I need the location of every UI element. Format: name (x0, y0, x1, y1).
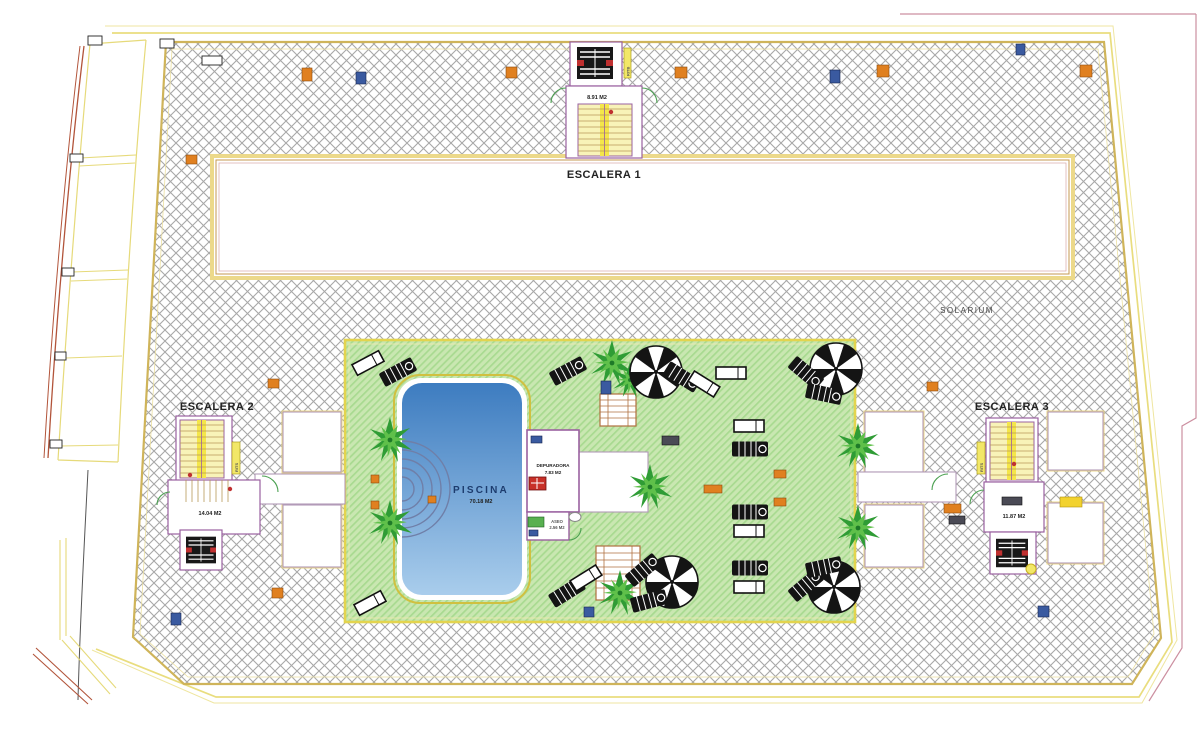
sun-lounger-icon (734, 525, 764, 537)
survey-marker (50, 440, 62, 448)
survey-marker (70, 154, 83, 162)
left-balcony-outlines (33, 36, 146, 704)
escalera2-area-label: 14.04 M2 (199, 511, 222, 517)
marker-badge (171, 613, 181, 625)
sun-lounger-icon (734, 581, 764, 593)
marker-badge (1080, 65, 1092, 77)
marker-badge (1002, 497, 1022, 505)
aseo-area-label: 2.56 M2 (549, 525, 565, 530)
site-edge-curve (78, 470, 88, 700)
lawn-steps-top (600, 394, 636, 426)
sun-lounger-icon (732, 505, 768, 520)
escalera1-area-label: 8.91 M2 (587, 95, 607, 101)
elevator-icon (186, 537, 216, 564)
sun-lounger-icon (716, 367, 746, 379)
marker-badge (584, 607, 594, 617)
marker-badge (774, 470, 786, 478)
stair-flight (578, 104, 632, 156)
marker-badge (268, 379, 279, 388)
solarium-label: SOLARIUM (940, 306, 994, 315)
depuradora-area-label: 7.83 M2 (545, 470, 562, 475)
roof-drain-icon (1026, 564, 1036, 574)
depuradora-label: DEPURADORA (537, 463, 571, 468)
floorplan-canvas: PISCINA 70.18 M2 DEPURADORA 7.83 M2 ASEO… (0, 0, 1200, 735)
pool-label: PISCINA (453, 485, 509, 496)
marker-badge (675, 67, 687, 78)
survey-marker (55, 352, 66, 360)
toilet-icon (569, 513, 581, 522)
stair-flight (180, 420, 224, 478)
marker-badge (704, 485, 722, 493)
pump-valve-icon (529, 477, 546, 490)
marker-badge (302, 68, 312, 81)
pool: PISCINA 70.18 M2 (394, 375, 530, 603)
survey-marker (62, 268, 74, 276)
marker-badge (371, 475, 379, 483)
marker-badge (371, 501, 379, 509)
marker-badge (877, 65, 889, 77)
sun-lounger-icon (734, 420, 764, 432)
marker-badge (160, 39, 174, 48)
marker-badge (774, 498, 786, 506)
marker-badge (927, 382, 938, 391)
marker-badge (1060, 497, 1082, 507)
elevator-icon (577, 47, 613, 79)
rits-label: RITS (234, 463, 239, 472)
survey-marker (88, 36, 102, 45)
escalera2-label: ESCALERA 2 (180, 401, 254, 413)
pool-area-label: 70.18 M2 (470, 499, 493, 505)
escalera1-label: ESCALERA 1 (567, 169, 641, 181)
aseo-label: ASEO (551, 519, 564, 524)
marker-badge (531, 436, 542, 443)
ritb-label: RITB (626, 67, 631, 76)
elevator-icon (996, 539, 1028, 567)
marker-badge (830, 70, 840, 83)
marker-badge (272, 588, 283, 598)
marker-badge (202, 56, 222, 65)
marker-badge (1016, 44, 1025, 55)
marker-badge (949, 516, 965, 524)
marker-badge (601, 381, 611, 394)
sun-lounger-icon (732, 442, 768, 457)
marker-badge (944, 504, 961, 513)
escalera3-label: ESCALERA 3 (975, 401, 1049, 413)
marker-badge (528, 517, 544, 527)
marker-badge (529, 530, 538, 536)
sun-lounger-icon (732, 561, 768, 576)
floorplan-svg: PISCINA 70.18 M2 DEPURADORA 7.83 M2 ASEO… (0, 0, 1200, 735)
marker-badge (662, 436, 679, 445)
marker-badge (506, 67, 517, 78)
stair-flight (990, 422, 1034, 480)
marker-badge (428, 496, 436, 503)
marker-badge (356, 72, 366, 84)
escalera3-area-label: 11.87 M2 (1003, 514, 1026, 520)
marker-badge (186, 155, 197, 164)
marker-badge (1038, 606, 1049, 617)
courtyard-void (212, 156, 1073, 278)
rits-label: RITS (979, 463, 984, 472)
